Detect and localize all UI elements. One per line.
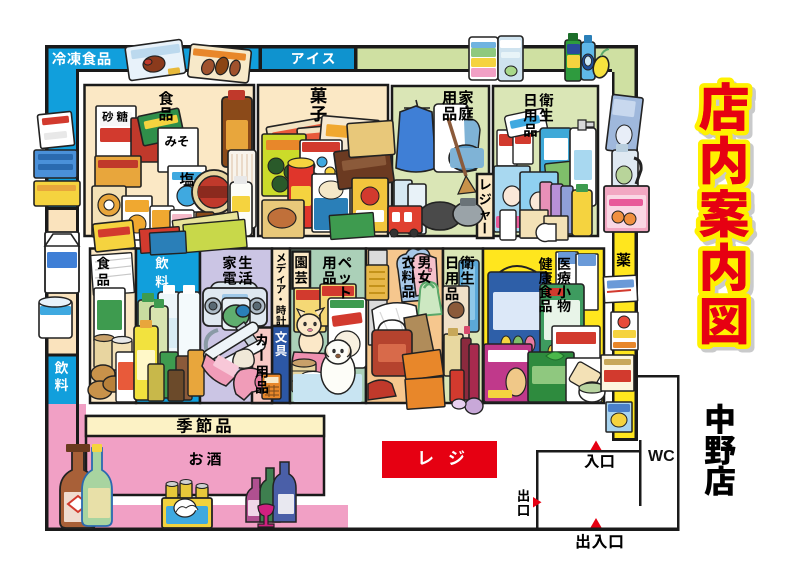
svg-text:WC: WC: [648, 448, 675, 465]
